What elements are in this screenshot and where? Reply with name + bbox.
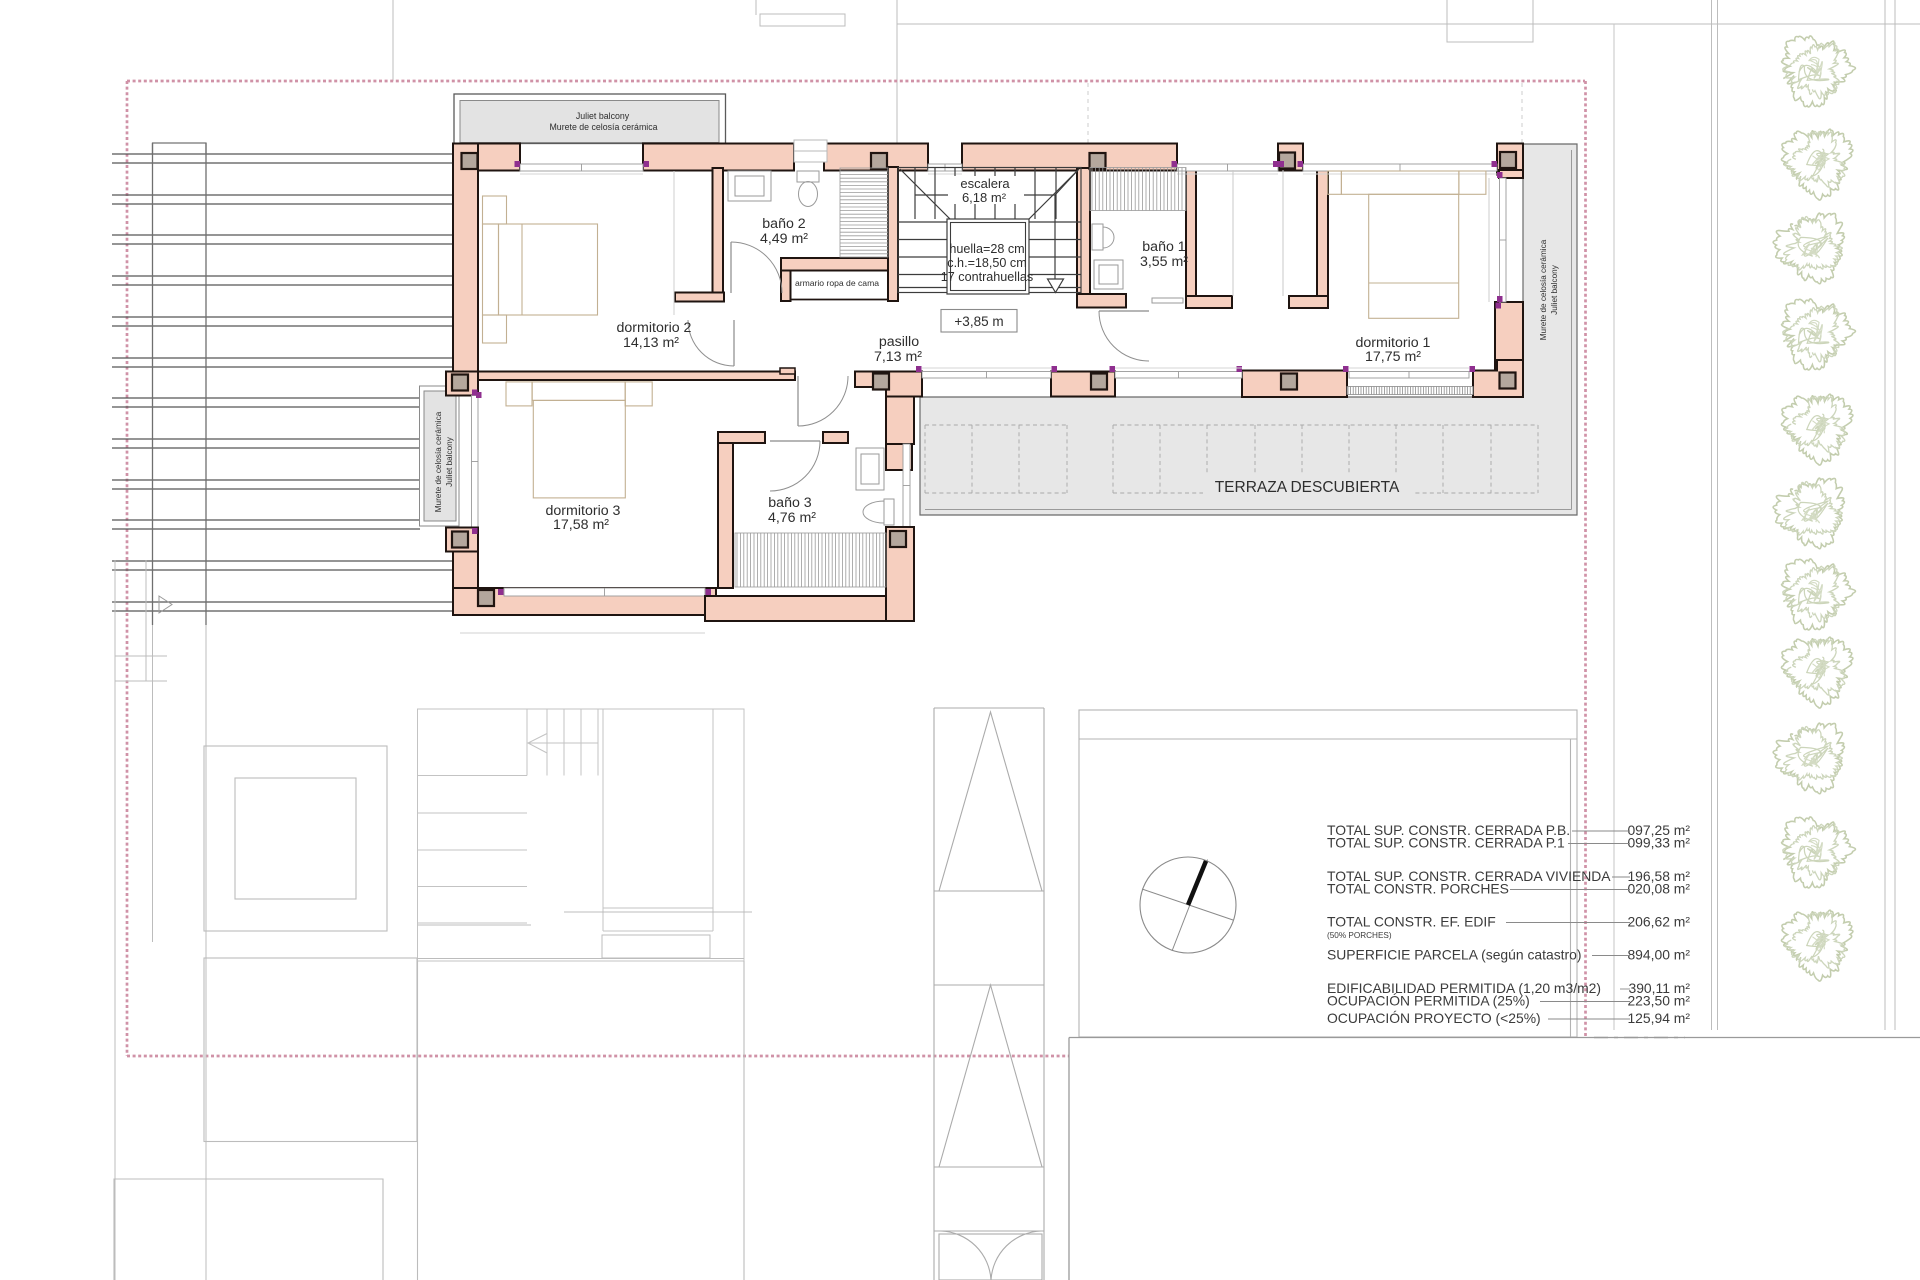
svg-text:Murete de celosía cerámica: Murete de celosía cerámica <box>549 122 657 132</box>
svg-text:7,13 m²: 7,13 m² <box>874 349 922 365</box>
svg-text:14,13 m²: 14,13 m² <box>623 335 679 351</box>
svg-text:huella=28 cm: huella=28 cm <box>949 242 1024 256</box>
svg-text:125,94 m²: 125,94 m² <box>1627 1010 1690 1026</box>
svg-text:TOTAL CONSTR. EF. EDIF: TOTAL CONSTR. EF. EDIF <box>1327 914 1496 930</box>
svg-text:(50% PORCHES): (50% PORCHES) <box>1327 931 1392 940</box>
svg-text:TOTAL SUP. CONSTR. CERRADA P.1: TOTAL SUP. CONSTR. CERRADA P.1 <box>1327 835 1565 851</box>
svg-text:escalera: escalera <box>960 176 1010 191</box>
svg-text:Murete de celosía cerámica: Murete de celosía cerámica <box>1539 239 1548 340</box>
svg-text:SUPERFICIE PARCELA (según cata: SUPERFICIE PARCELA (según catastro) <box>1327 947 1582 963</box>
svg-text:baño 2: baño 2 <box>762 216 806 232</box>
svg-text:17,58 m²: 17,58 m² <box>553 517 609 533</box>
svg-text:baño 1: baño 1 <box>1142 239 1186 255</box>
svg-text:17,75 m²: 17,75 m² <box>1365 349 1421 365</box>
svg-text:17 contrahuellas: 17 contrahuellas <box>941 270 1033 284</box>
svg-text:armario ropa de cama: armario ropa de cama <box>795 278 879 288</box>
svg-text:Juliet balcony: Juliet balcony <box>445 436 454 487</box>
svg-text:Juliet balcony: Juliet balcony <box>576 111 630 121</box>
svg-text:pasillo: pasillo <box>879 334 919 350</box>
svg-text:223,50 m²: 223,50 m² <box>1627 993 1690 1009</box>
svg-text:4,49 m²: 4,49 m² <box>760 231 808 247</box>
svg-text:dormitorio 2: dormitorio 2 <box>617 320 692 336</box>
svg-text:099,33 m²: 099,33 m² <box>1627 835 1690 851</box>
svg-text:Murete de celosía cerámica: Murete de celosía cerámica <box>434 411 443 512</box>
svg-text:206,62 m²: 206,62 m² <box>1627 914 1690 930</box>
svg-text:894,00 m²: 894,00 m² <box>1627 947 1690 963</box>
svg-text:3,55 m²: 3,55 m² <box>1140 254 1188 270</box>
svg-text:OCUPACIÓN PERMITIDA (25%): OCUPACIÓN PERMITIDA (25%) <box>1327 993 1530 1009</box>
svg-text:+3,85 m: +3,85 m <box>954 314 1003 329</box>
svg-text:TERRAZA DESCUBIERTA: TERRAZA DESCUBIERTA <box>1215 479 1400 496</box>
svg-text:TOTAL CONSTR. PORCHES: TOTAL CONSTR. PORCHES <box>1327 881 1509 897</box>
svg-text:020,08 m²: 020,08 m² <box>1627 881 1690 897</box>
svg-text:6,18 m²: 6,18 m² <box>962 190 1007 205</box>
svg-text:OCUPACIÓN PROYECTO (<25%): OCUPACIÓN PROYECTO (<25%) <box>1327 1010 1541 1026</box>
svg-text:4,76 m²: 4,76 m² <box>768 510 816 526</box>
svg-text:c.h.=18,50 cm: c.h.=18,50 cm <box>947 256 1026 270</box>
svg-text:baño 3: baño 3 <box>768 495 812 511</box>
svg-text:Juliet balcony: Juliet balcony <box>1550 264 1559 315</box>
